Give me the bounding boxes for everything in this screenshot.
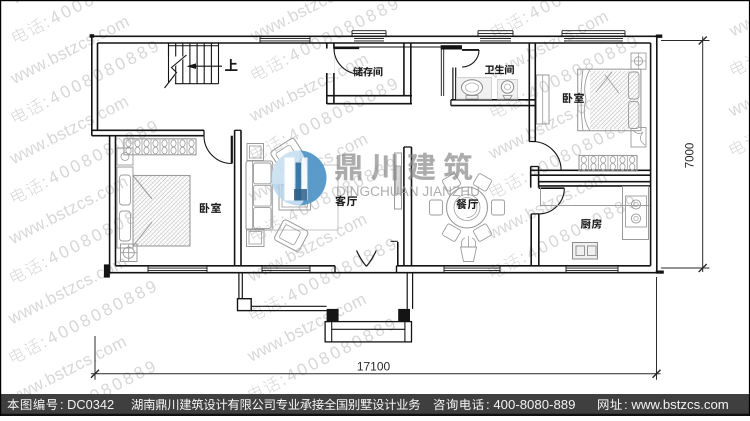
svg-text:17100: 17100 [357,359,391,373]
svg-text:: 400-8080-889: : 400-8080-889 [486,397,575,412]
svg-text:DINGCHUAN JIANZHU: DINGCHUAN JIANZHU [336,184,480,199]
svg-text:: www.bstzcs.com: : www.bstzcs.com [624,397,729,412]
svg-text:: DC0342: : DC0342 [60,397,114,412]
svg-text:7000: 7000 [685,143,697,169]
